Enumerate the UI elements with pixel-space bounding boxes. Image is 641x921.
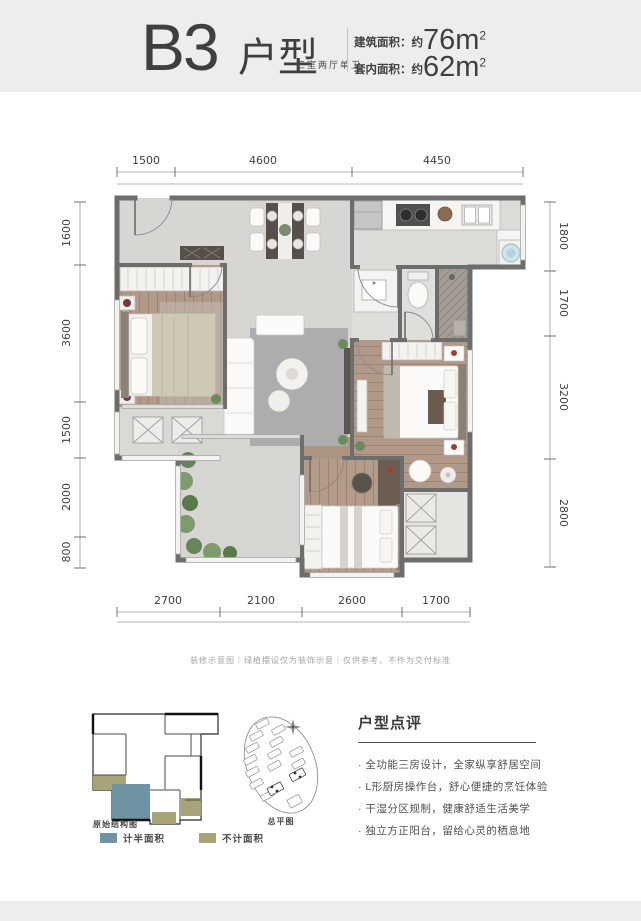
page-title: B3 [141,14,218,80]
dim-left-1: 1600 [60,219,73,247]
legend-swatch-uncounted-area [199,833,216,843]
dim-left-5: 800 [60,542,73,563]
unit-review: 户型点评 · 全功能三房设计，全家纵享舒居空间 · L形厨房操作台，舒心便捷的烹… [358,712,568,842]
floor-plan: 1500 4600 4450 2700 2100 2600 1700 1600 … [0,95,641,675]
inner-area-row: 套内面积：约62m2 [354,51,486,84]
dim-bottom-4: 1700 [422,594,450,607]
dim-right-4: 2800 [557,499,570,527]
footer-band [0,901,641,921]
dim-left-2: 3600 [60,319,73,347]
review-bullet-2: · L形厨房操作台，舒心便捷的烹饪体验 [358,776,568,798]
dim-bottom-2: 2100 [247,594,275,607]
disclaimer-text: 装修示意图｜绿植摆设仅为装饰示意｜仅供参考，不作为交付标准 [0,655,641,666]
mini-courtyard-teal [112,784,150,820]
header-band [0,0,641,92]
inner-area-value: 62m [423,51,479,83]
inner-area-sup: 2 [479,56,486,70]
site-plan [233,705,353,830]
dim-bottom-3: 2600 [338,594,366,607]
mini-bottom-olive [152,812,176,824]
legend-label-uncounted-area: 不计面积 [222,831,264,845]
dim-bottom-1: 2700 [154,594,182,607]
dim-left-3: 1500 [60,416,73,444]
review-title: 户型点评 [358,712,568,733]
dim-top-1: 1500 [132,154,160,167]
review-divider [358,742,536,743]
dim-left-4: 2000 [60,483,73,511]
dim-right-2: 1700 [557,289,570,317]
legend-label-half-area: 计半面积 [123,831,165,845]
review-bullet-3: · 干湿分区规制，健康舒适生活美学 [358,798,568,820]
dim-top-3: 4450 [423,154,451,167]
original-structure-plan [85,705,230,830]
site-plan-label: 总平图 [250,816,312,827]
dim-right-3: 3200 [557,383,570,411]
review-bullets: · 全功能三房设计，全家纵享舒居空间 · L形厨房操作台，舒心便捷的烹饪体验 ·… [358,754,568,842]
header-divider [347,28,348,72]
unit-subtitle: 三室两厅单卫 [296,58,362,71]
built-area-label: 建筑面积：约 [354,37,423,49]
dim-right-1: 1800 [557,222,570,250]
legend-swatch-half-area [100,833,117,843]
inner-area-label: 套内面积：约 [354,64,423,76]
dim-top-2: 4600 [249,154,277,167]
review-bullet-1: · 全功能三房设计，全家纵享舒居空间 [358,754,568,776]
built-area-sup: 2 [479,29,486,43]
mini-closet-olive [181,798,201,816]
area-legend: 计半面积 不计面积 [100,831,298,845]
review-bullet-4: · 独立方正阳台，留给心灵的栖息地 [358,820,568,842]
original-structure-label: 原始结构图 [93,819,138,830]
